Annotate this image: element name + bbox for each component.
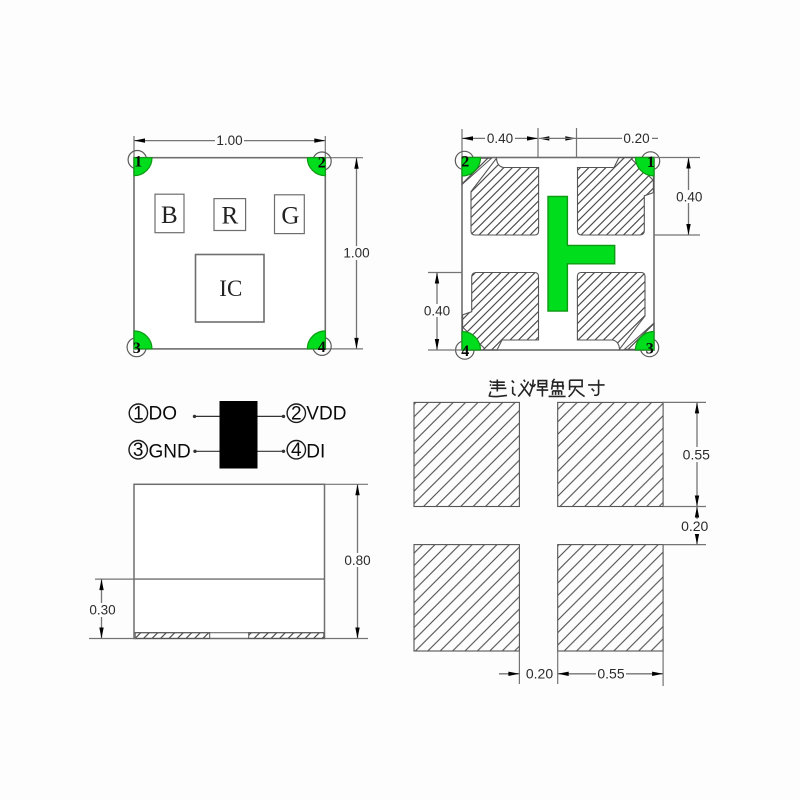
svg-text:IC: IC — [219, 276, 242, 301]
svg-text:1.00: 1.00 — [216, 133, 242, 148]
svg-text:4: 4 — [318, 339, 326, 356]
svg-text:0.80: 0.80 — [344, 553, 370, 568]
svg-text:DO: DO — [149, 404, 178, 425]
svg-text:0.40: 0.40 — [487, 131, 513, 146]
svg-text:0.20: 0.20 — [681, 518, 708, 534]
svg-text:2: 2 — [291, 404, 302, 425]
svg-text:VDD: VDD — [306, 404, 346, 425]
svg-text:3: 3 — [133, 440, 144, 461]
svg-text:1: 1 — [647, 154, 655, 171]
svg-text:0.30: 0.30 — [89, 603, 115, 618]
svg-text:4: 4 — [461, 343, 469, 360]
svg-text:0.55: 0.55 — [597, 665, 624, 681]
svg-text:GND: GND — [149, 442, 191, 463]
svg-text:2: 2 — [461, 153, 469, 170]
svg-text:1: 1 — [133, 404, 144, 425]
svg-text:0.20: 0.20 — [623, 131, 649, 146]
svg-text:0.20: 0.20 — [526, 665, 553, 681]
svg-text:0.55: 0.55 — [683, 446, 710, 462]
svg-text:G: G — [281, 202, 299, 229]
svg-text:4: 4 — [291, 440, 302, 461]
svg-text:2: 2 — [318, 155, 326, 172]
svg-text:0.40: 0.40 — [676, 189, 702, 204]
svg-text:0.40: 0.40 — [424, 303, 450, 318]
svg-text:1.00: 1.00 — [343, 246, 369, 261]
svg-text:B: B — [161, 202, 178, 229]
svg-text:R: R — [221, 203, 238, 230]
svg-text:3: 3 — [646, 340, 654, 357]
svg-text:DI: DI — [306, 442, 325, 463]
svg-text:3: 3 — [133, 340, 141, 357]
svg-text:1: 1 — [134, 153, 142, 170]
